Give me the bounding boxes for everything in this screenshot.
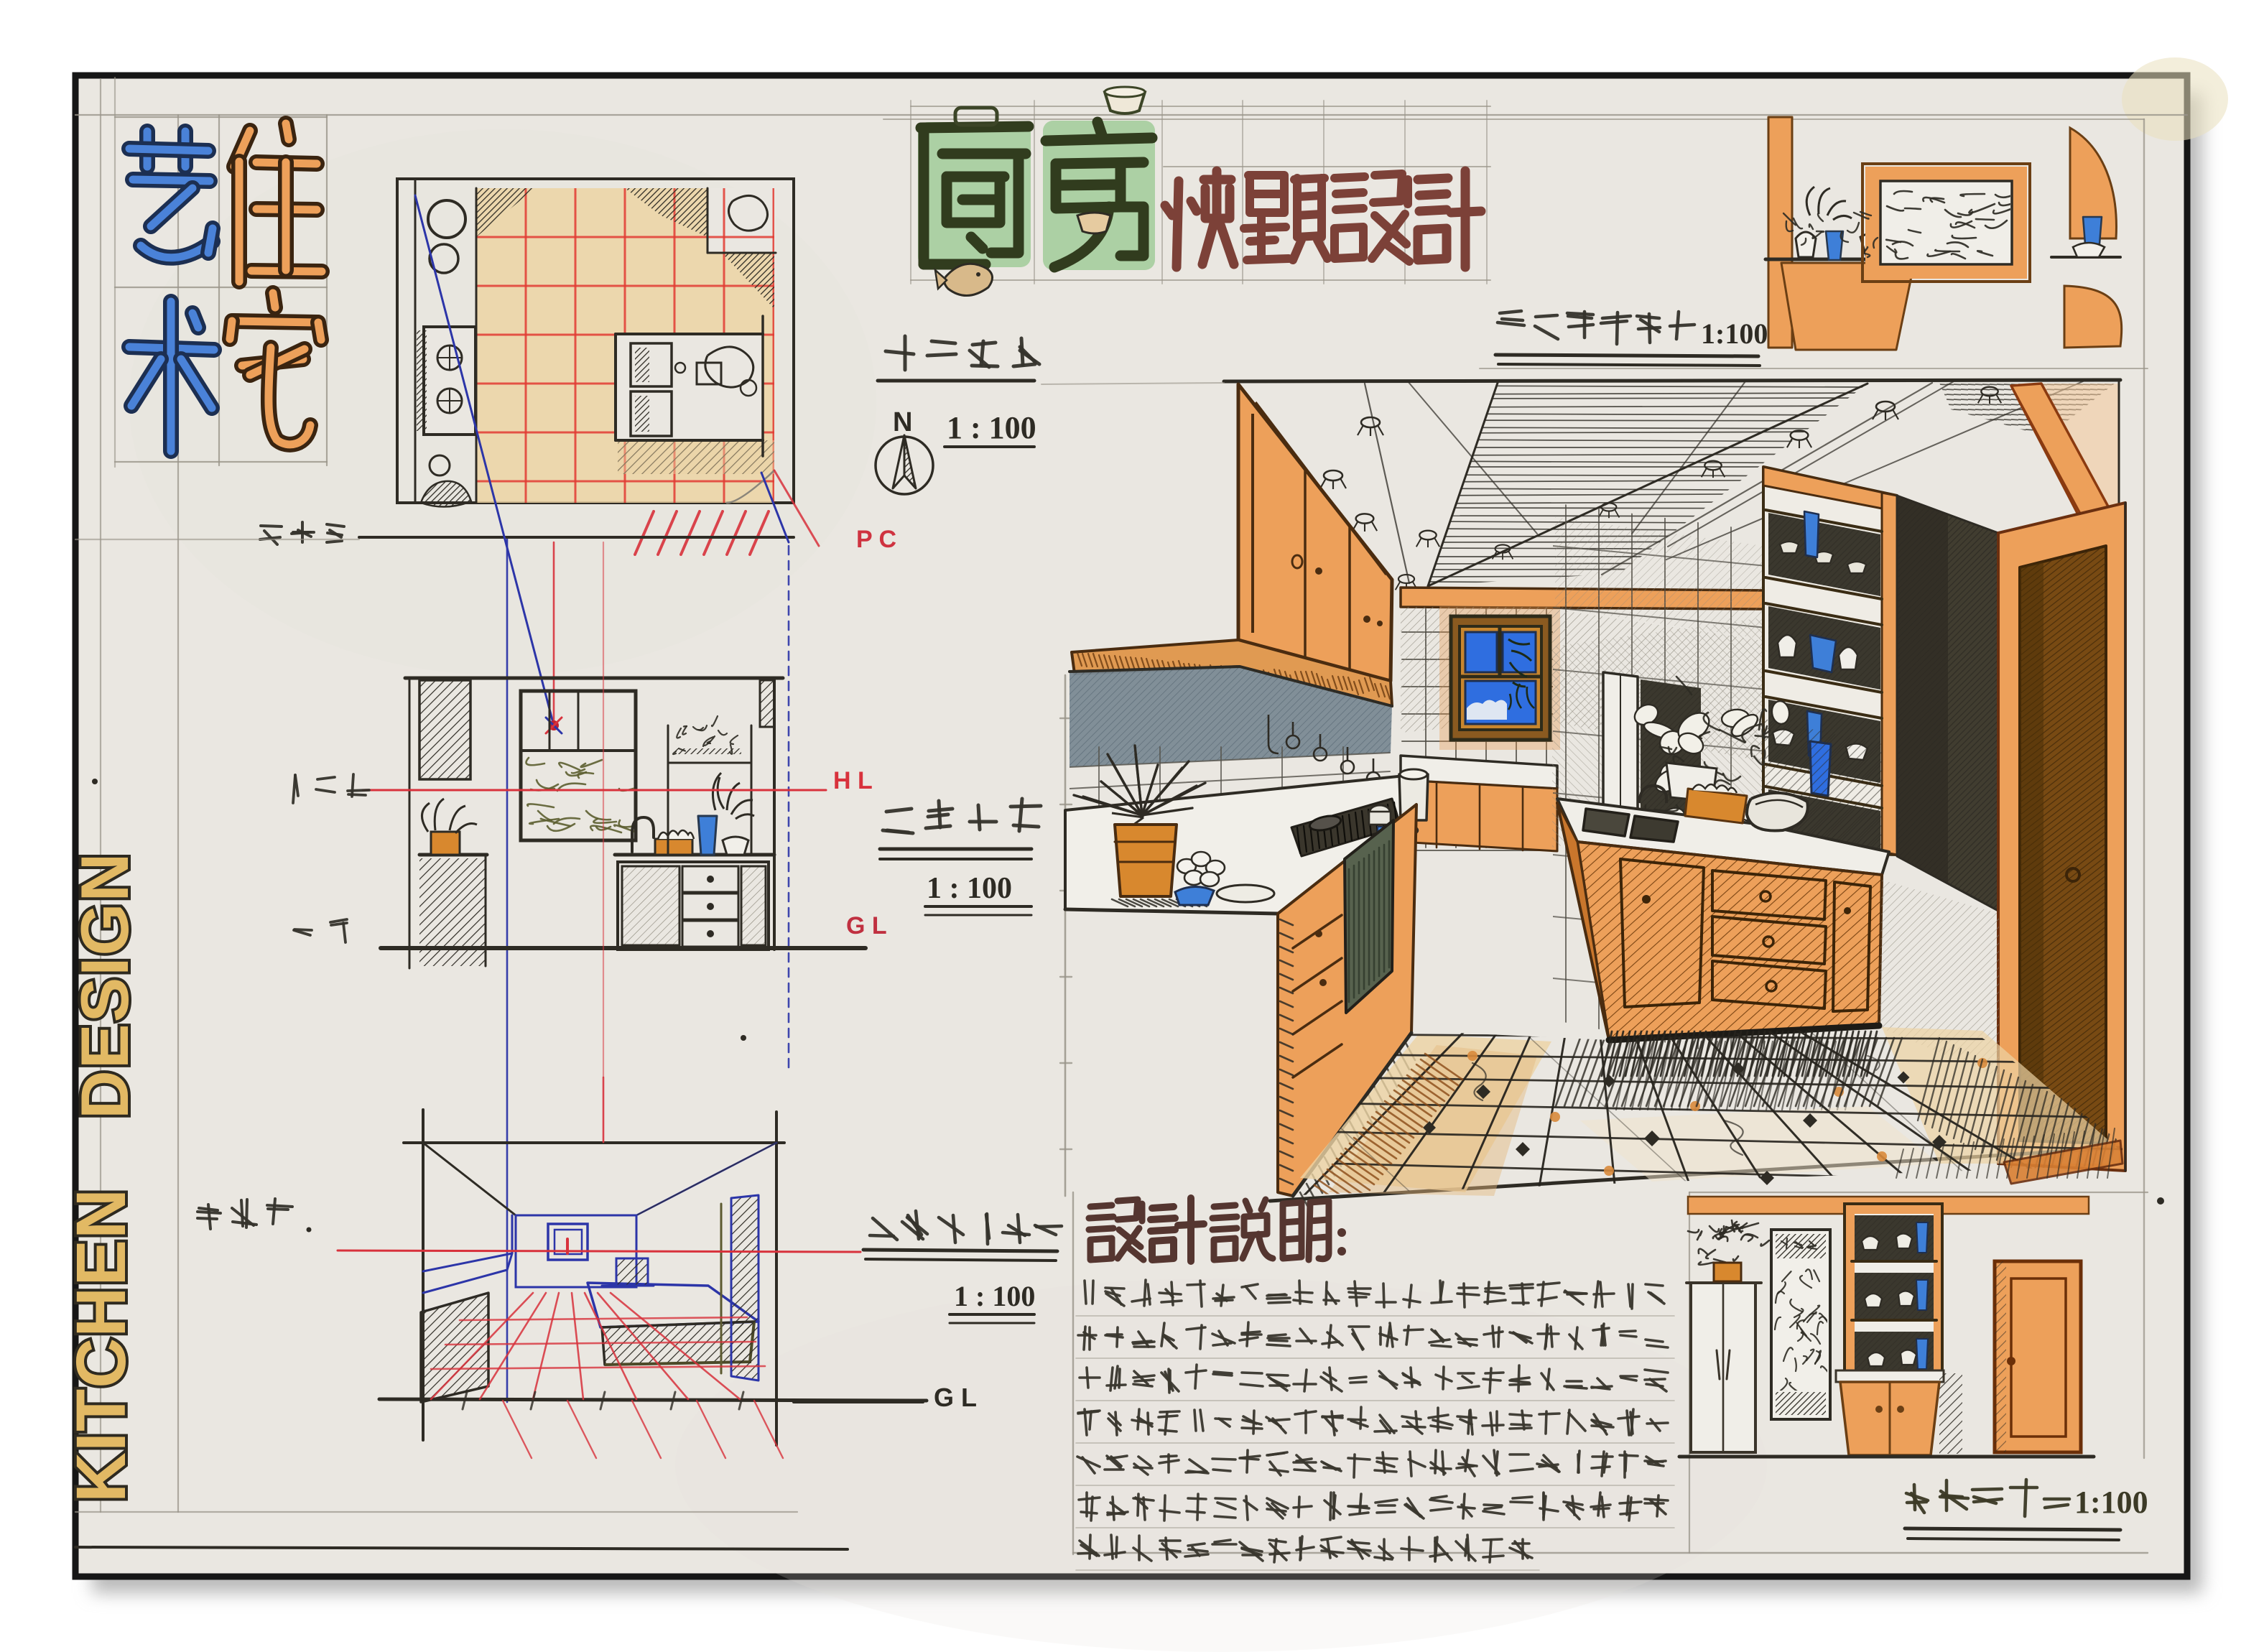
svg-text:1:100: 1:100 bbox=[2074, 1485, 2148, 1520]
svg-text:P C: P C bbox=[856, 526, 896, 553]
svg-text:N: N bbox=[893, 407, 912, 437]
svg-text:KITCHEN: KITCHEN bbox=[62, 1188, 140, 1503]
svg-text:1 : 100: 1 : 100 bbox=[947, 410, 1036, 445]
svg-text:G L: G L bbox=[934, 1383, 977, 1412]
svg-text:H L: H L bbox=[833, 767, 873, 794]
svg-text:1 : 100: 1 : 100 bbox=[927, 872, 1012, 905]
svg-text:DESIGN: DESIGN bbox=[67, 852, 142, 1119]
svg-text:1:100: 1:100 bbox=[1701, 317, 1768, 350]
svg-text:G L: G L bbox=[846, 912, 887, 939]
svg-text:1 : 100: 1 : 100 bbox=[954, 1280, 1035, 1312]
